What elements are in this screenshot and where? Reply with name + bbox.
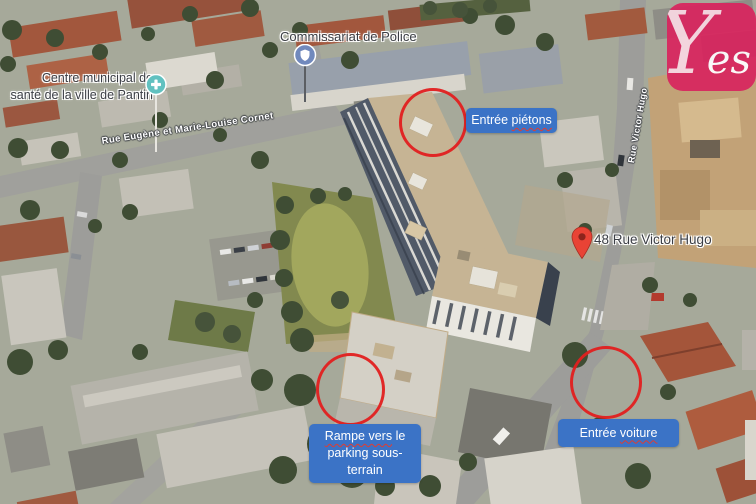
annotation-text-underlined: piétons — [512, 113, 552, 127]
highlight-circle-car-entrance — [570, 346, 642, 419]
annotation-car-entrance: Entrée voiture — [558, 419, 679, 447]
poi-label-health-line1: Centre municipal de — [8, 70, 153, 87]
poi-label-health-center: Centre municipal de santé de la ville de… — [8, 70, 153, 104]
annotation-text-plain: le — [392, 429, 405, 443]
red-map-pin-icon — [571, 226, 593, 260]
annotation-text-plain: terrain — [347, 463, 382, 477]
yes-logo-text: Yes — [667, 3, 751, 87]
annotation-text-plain: Entrée — [580, 426, 620, 440]
annotation-text-plain: Entrée — [471, 113, 511, 127]
annotation-text-underlined: Rampe vers — [325, 429, 392, 443]
poi-label-police: Commissariat de Police — [280, 29, 417, 44]
annotation-parking-ramp: Rampe vers le parking sous- terrain — [309, 424, 421, 483]
highlight-circle-pedestrian-entrance — [399, 88, 467, 157]
annotation-pedestrian-entrance: Entrée piétons — [466, 108, 557, 133]
health-marker-icon — [144, 74, 168, 156]
aerial-map-canvas: Commissariat de Police Centre municipal … — [0, 0, 756, 504]
highlight-circle-parking-ramp — [316, 353, 385, 426]
annotation-text: Rampe vers le parking sous- terrain — [325, 428, 406, 479]
address-label: 48 Rue Victor Hugo — [594, 232, 712, 247]
yes-logo: Yes — [667, 3, 756, 91]
annotation-text-underlined: voiture — [620, 426, 658, 440]
annotation-text: Entrée voiture — [580, 425, 658, 442]
annotation-text-plain: parking sous- — [327, 446, 402, 460]
poi-label-health-line2: santé de la ville de Pantin — [8, 87, 153, 104]
annotation-text: Entrée piétons — [471, 112, 552, 129]
police-marker-icon — [293, 44, 317, 106]
